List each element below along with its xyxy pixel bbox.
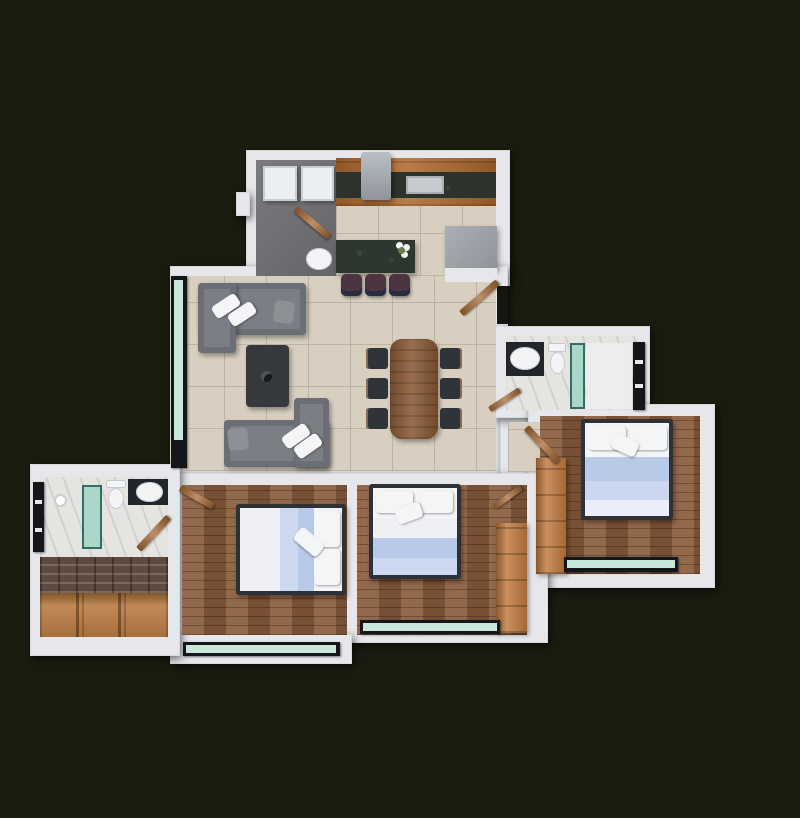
- shower-head: [56, 496, 65, 505]
- bathroom-window: [633, 342, 645, 410]
- gray-cushion: [273, 300, 296, 325]
- dining-chair: [366, 348, 388, 369]
- toilet-tank: [106, 480, 126, 488]
- bedroom-window-glass: [567, 560, 675, 568]
- bed-sheet: [373, 518, 457, 538]
- floor-plan-render: [0, 0, 800, 818]
- gray-cushion: [227, 427, 249, 451]
- wardrobe: [496, 523, 527, 633]
- balcony-window-glass: [186, 645, 336, 653]
- dining-table: [390, 339, 438, 439]
- storage-shelf: [40, 593, 168, 637]
- bed-blanket: [585, 481, 669, 500]
- entrance-opening: [497, 286, 508, 324]
- bed-sheet: [240, 508, 280, 591]
- shower-glass: [570, 343, 585, 409]
- refrigerator: [445, 226, 497, 270]
- bed-blanket: [585, 457, 669, 481]
- dining-chair: [440, 378, 462, 399]
- window-mullion: [635, 360, 643, 364]
- kitchen-sink: [406, 176, 444, 194]
- dryer: [301, 166, 334, 201]
- laundry-basin: [306, 248, 332, 270]
- window-mullion: [35, 500, 42, 504]
- bathroom-sink: [510, 347, 540, 370]
- kitchen-cabinet-front: [336, 198, 496, 206]
- shelf-divider: [118, 593, 121, 637]
- toilet-tank: [548, 343, 566, 352]
- coffee-table-decor: [261, 371, 272, 382]
- toilet: [550, 352, 565, 374]
- stone-accent-wall: [40, 557, 168, 593]
- shelf-divider: [76, 593, 79, 637]
- bar-stool: [365, 274, 386, 296]
- dining-chair: [366, 408, 388, 429]
- window-mullion: [35, 528, 42, 532]
- bed-blanket: [373, 538, 457, 558]
- washing-machine: [263, 166, 297, 201]
- stove-hood: [361, 152, 391, 200]
- bed-blanket: [585, 500, 669, 516]
- dining-chair: [366, 378, 388, 399]
- dining-chair: [440, 408, 462, 429]
- bathroom-window: [33, 482, 44, 552]
- refrigerator-base: [445, 268, 497, 282]
- island-flower-decor: [398, 247, 405, 254]
- dining-chair: [440, 348, 462, 369]
- bathroom-sink: [136, 482, 163, 502]
- bedroom-window-glass: [363, 623, 497, 631]
- bed-blanket: [280, 508, 298, 591]
- toilet: [108, 488, 124, 509]
- shower-area: [586, 343, 632, 409]
- bar-stool: [341, 274, 362, 296]
- balcony-door-glass: [174, 280, 183, 440]
- window-mullion: [635, 384, 643, 388]
- wardrobe: [536, 458, 566, 574]
- wall-ledge: [236, 192, 250, 216]
- bar-stool: [389, 274, 410, 296]
- bed-blanket: [373, 558, 457, 575]
- shower-glass: [82, 485, 102, 549]
- kitchen-island: [336, 240, 415, 273]
